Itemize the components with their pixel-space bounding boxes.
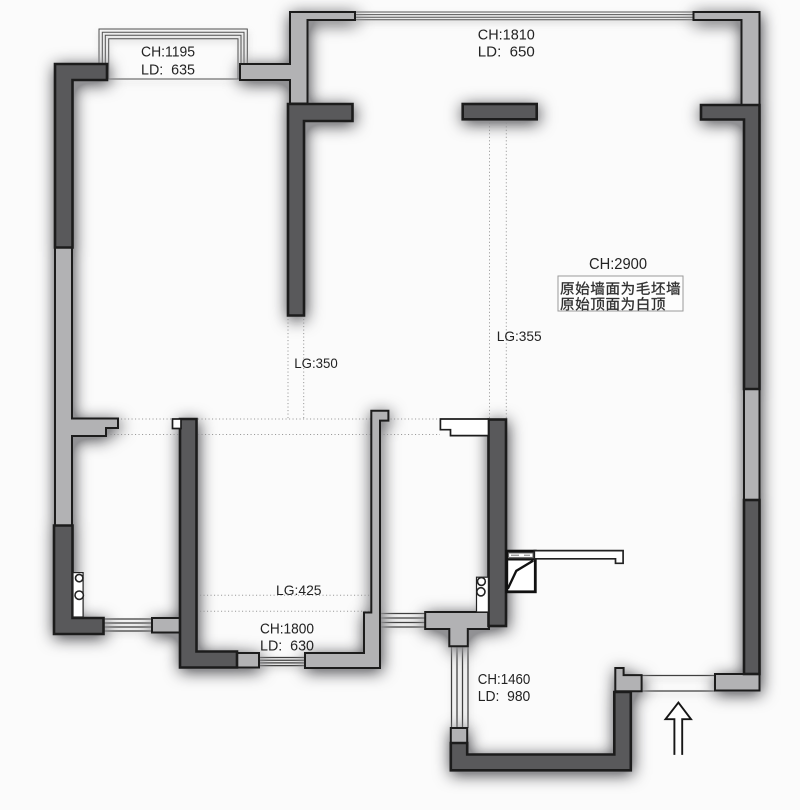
svg-text:LD: 980: LD: 980 bbox=[478, 688, 531, 705]
svg-text:CH:1460: CH:1460 bbox=[478, 671, 531, 688]
svg-text:LD: 635: LD: 635 bbox=[141, 61, 195, 78]
svg-text:LG:350: LG:350 bbox=[294, 355, 338, 371]
svg-text:CH:1195: CH:1195 bbox=[141, 44, 195, 61]
svg-text:CH:1800: CH:1800 bbox=[260, 621, 314, 638]
svg-text:CH:2900: CH:2900 bbox=[589, 256, 647, 273]
svg-text:LG:425: LG:425 bbox=[276, 582, 322, 598]
svg-text:LD: 630: LD: 630 bbox=[260, 638, 314, 655]
svg-text:LG:355: LG:355 bbox=[497, 328, 542, 344]
svg-text:LD: 650: LD: 650 bbox=[478, 44, 535, 61]
svg-text:CH:1810: CH:1810 bbox=[478, 27, 535, 44]
